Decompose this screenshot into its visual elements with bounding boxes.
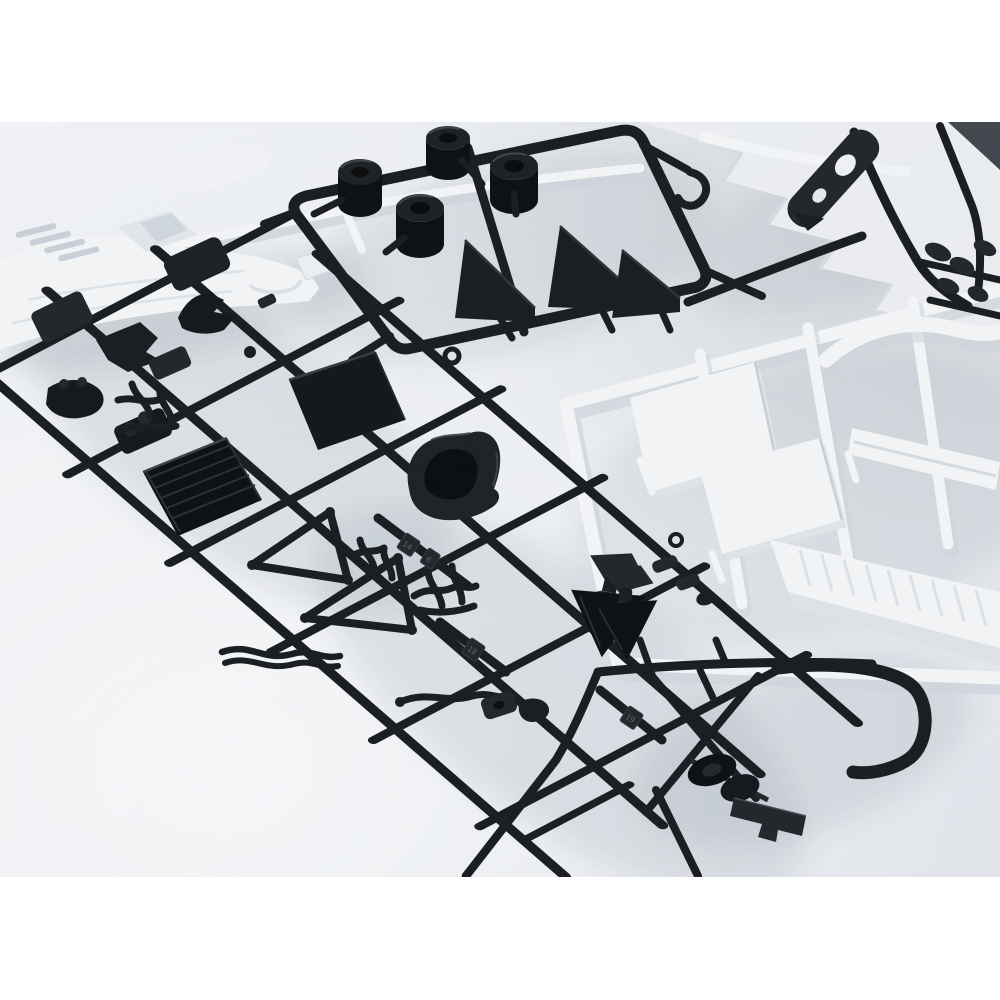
photo-grain (0, 122, 1000, 877)
top-margin (0, 0, 1000, 122)
photo-page: 14 6 18 19 (0, 0, 1000, 1000)
bottom-margin (0, 877, 1000, 1000)
sprue-photo: 14 6 18 19 (0, 0, 1000, 1000)
